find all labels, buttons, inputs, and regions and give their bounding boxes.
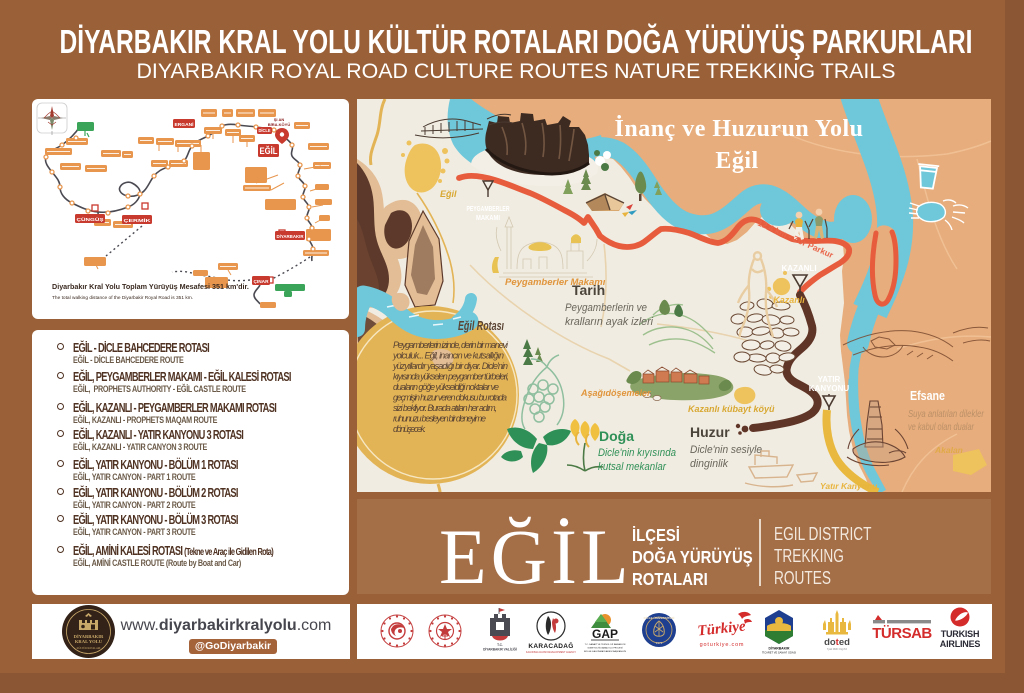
svg-text:Peygamberlerin izinde, derin b: Peygamberlerin izinde, derin bir manevi <box>393 340 509 350</box>
svg-text:Kazanlı kübayt köyü: Kazanlı kübayt köyü <box>688 404 775 414</box>
svg-text:DİYARBAKIR KRAL YOLU KÜLTÜR RO: DİYARBAKIR KRAL YOLU KÜLTÜR ROTALARI DOĞ… <box>60 23 973 60</box>
svg-text:TURKISH: TURKISH <box>941 629 980 639</box>
svg-text:KANYONU: KANYONU <box>809 384 850 393</box>
svg-text:goturkiye.com: goturkiye.com <box>700 642 745 648</box>
svg-text:sizi bekliyor. Burada atılan h: sizi bekliyor. Burada atılan her adım, <box>393 403 497 413</box>
svg-text:Eğil: Eğil <box>715 148 758 174</box>
svg-text:KAZANLI: KAZANLI <box>781 264 816 273</box>
svg-text:AIRLINES: AIRLINES <box>940 639 981 649</box>
svg-text:Doğa: Doğa <box>599 428 634 444</box>
svg-text:kralların ayak izleri: kralların ayak izleri <box>565 316 654 328</box>
svg-text:kıyısında yükselen peygamber t: kıyısında yükselen peygamber türbeleri, <box>393 372 509 382</box>
svg-text:DİCLE: DİCLE <box>259 127 271 133</box>
svg-text:ÇERMİK: ÇERMİK <box>124 217 152 223</box>
svg-text:Huzur: Huzur <box>690 424 730 440</box>
svg-text:doted: doted <box>824 637 850 648</box>
svg-text:geçmişin huzur veren dokusu bu: geçmişin huzur veren dokusu bu rotada <box>393 393 507 403</box>
svg-text:Efsane: Efsane <box>910 388 945 403</box>
svg-text:ERGANİ: ERGANİ <box>175 121 194 127</box>
svg-text:dönüşecek.: dönüşecek. <box>393 424 426 434</box>
svg-text:Suya anlatılan dilekler: Suya anlatılan dilekler <box>908 408 984 420</box>
svg-text:Tyab DMO Org.Pzt: Tyab DMO Org.Pzt <box>827 648 848 651</box>
svg-text:EĞİL: EĞİL <box>260 145 278 156</box>
svg-text:Kazanlı: Kazanlı <box>773 295 805 305</box>
svg-text:yolculuk... Eğil, inancın ve k: yolculuk... Eğil, inancın ve kutsallığın <box>392 351 504 361</box>
svg-text:DİCLE ÜNİVERSİTESİ: DİCLE ÜNİVERSİTESİ <box>644 615 675 620</box>
svg-text:Peygamberlerin ve: Peygamberlerin ve <box>565 302 647 314</box>
svg-text:DİYARBAKIR: DİYARBAKIR <box>277 233 305 239</box>
svg-text:Akalan: Akalan <box>934 445 963 455</box>
svg-text:PEYGAMBERLER: PEYGAMBERLER <box>467 206 510 213</box>
svg-text:Yatır Kanyonu: Yatır Kanyonu <box>820 481 878 491</box>
svg-text:ve kabul olan dualar: ve kabul olan dualar <box>908 421 974 433</box>
svg-text:TÜRSAB: TÜRSAB <box>872 625 932 642</box>
svg-text:KALKINMA AJANSI DEVELOPMENT AG: KALKINMA AJANSI DEVELOPMENT AGENCY <box>526 651 577 654</box>
svg-text:Diyarbakır Kral Yolu Toplam Yü: Diyarbakır Kral Yolu Toplam Yürüyüş Mesa… <box>52 282 249 291</box>
svg-text:BÖLGE KALKINMA İDARESİ BAŞKANL: BÖLGE KALKINMA İDARESİ BAŞKANLIĞI <box>584 650 626 653</box>
svg-text:KRAL YOLU: KRAL YOLU <box>75 639 103 644</box>
svg-text:Türkiye: Türkiye <box>697 619 747 640</box>
svg-text:KARACADAĞ: KARACADAĞ <box>528 641 573 650</box>
svg-text:Dicle'nin kıyısında: Dicle'nin kıyısında <box>598 447 676 459</box>
svg-text:The total walking distance of: The total walking distance of the Diyarb… <box>52 295 193 301</box>
svg-text:T.C.: T.C. <box>497 643 503 647</box>
svg-text:GÜNEYDOĞU ANADOLU PROJESİ: GÜNEYDOĞU ANADOLU PROJESİ <box>587 647 623 650</box>
svg-text:Dicle'nin sesiyle: Dicle'nin sesiyle <box>690 444 762 456</box>
svg-text:T.C. SANAYİ VE TEKNOLOJİ BAKAN: T.C. SANAYİ VE TEKNOLOJİ BAKANLIĞI <box>585 643 626 646</box>
svg-text:Tarih: Tarih <box>572 282 605 298</box>
svg-text:DIYARBAKIR ROYAL ROAD CULTURE: DIYARBAKIR ROYAL ROAD CULTURE ROUTES NAT… <box>137 59 896 83</box>
svg-text:MAKAMI: MAKAMI <box>476 215 500 222</box>
svg-text:DİYARBAKIR VALİLİĞİ: DİYARBAKIR VALİLİĞİ <box>483 647 517 652</box>
svg-text:kutsal mekanlar: kutsal mekanlar <box>598 461 667 473</box>
svg-text:GAP: GAP <box>592 627 618 641</box>
svg-text:dinginlik: dinginlik <box>690 458 728 470</box>
svg-text:1973: 1973 <box>656 641 663 645</box>
svg-text:YATIR: YATIR <box>818 375 841 384</box>
svg-text:KÜLTÜR ROTALARI: KÜLTÜR ROTALARI <box>77 647 101 650</box>
svg-text:İnanç ve Huzurun Yolu: İnanç ve Huzurun Yolu <box>615 116 864 142</box>
svg-text:ÇÜNGÜŞ: ÇÜNGÜŞ <box>77 216 104 222</box>
svg-text:Eğil Rotası: Eğil Rotası <box>458 319 504 333</box>
svg-text:Aşağıdöşemeler: Aşağıdöşemeler <box>580 388 651 398</box>
svg-text:ÇINAR: ÇINAR <box>254 279 270 284</box>
svg-text:yüzyıllardır yaşadığı bir diya: yüzyıllardır yaşadığı bir diyar. Dicle'n… <box>392 361 508 371</box>
svg-text:ruhunuzu besleyen bir deneyime: ruhunuzu besleyen bir deneyime <box>393 414 486 424</box>
svg-text:duaların göğe yükseldiği nokta: duaların göğe yükseldiği noktalar ve <box>393 382 499 392</box>
svg-text:Eğil: Eğil <box>440 189 457 199</box>
svg-text:BİRA.KÖYÜ: BİRA.KÖYÜ <box>268 122 291 127</box>
svg-text:DİYARBAKIR: DİYARBAKIR <box>769 647 791 651</box>
